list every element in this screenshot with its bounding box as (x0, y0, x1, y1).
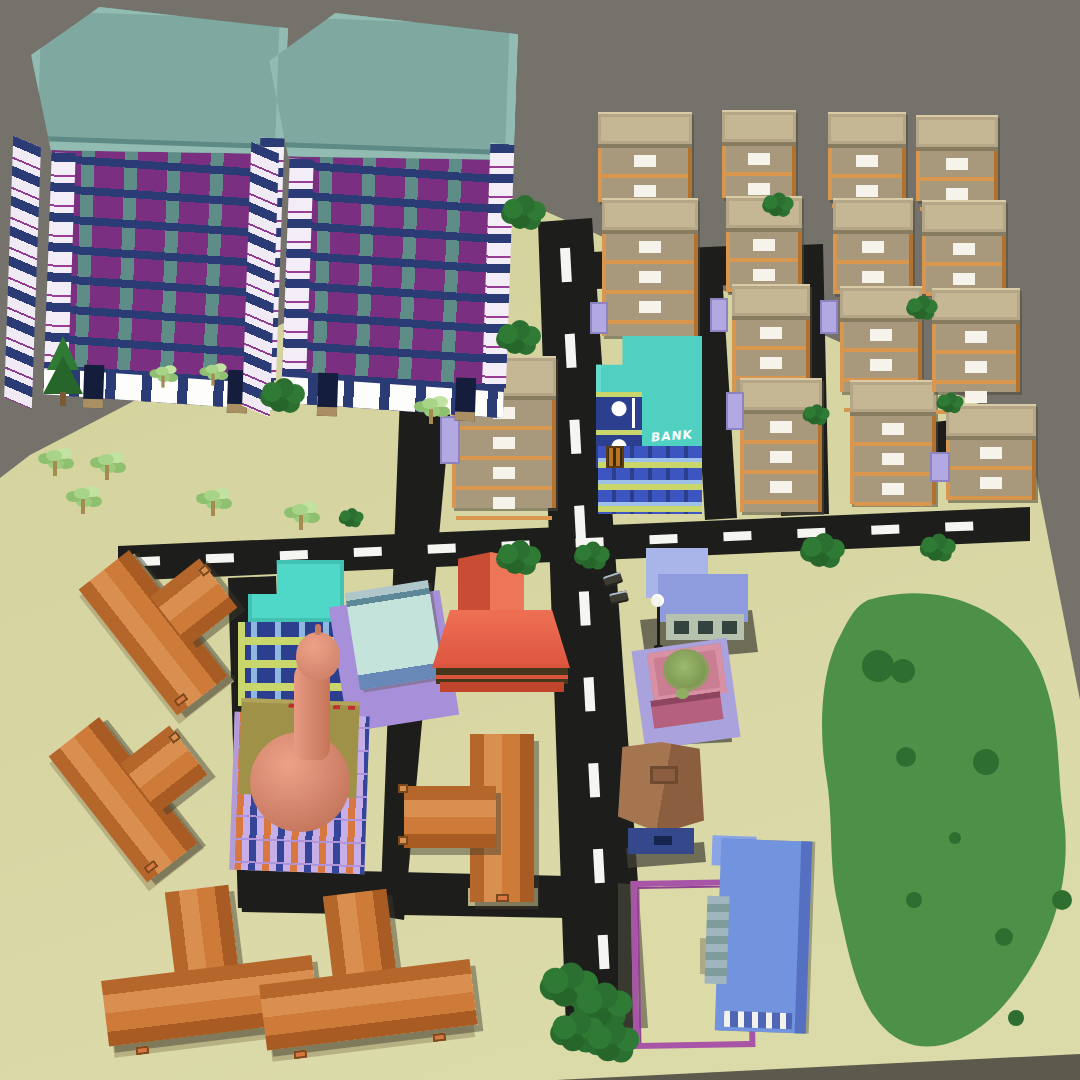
apartment-block (946, 404, 1036, 500)
dark-tree (938, 391, 964, 415)
street-lamp-pole (657, 606, 660, 648)
balcony-awning (820, 300, 838, 334)
pine-tree (36, 336, 90, 408)
chimney (398, 784, 408, 793)
mint-building (345, 580, 443, 690)
bank-sign: BANK (651, 427, 694, 444)
window (980, 477, 1002, 489)
orange-house (398, 730, 543, 908)
barn-window (654, 836, 672, 845)
barn-roof-hatch (650, 766, 678, 784)
dark-tree (764, 191, 795, 219)
window (862, 271, 884, 283)
window (639, 241, 661, 253)
apartment-roof (916, 115, 998, 151)
apartment-roof (732, 284, 810, 320)
apartment-block (598, 112, 692, 202)
hall-window-row (724, 1011, 793, 1029)
palm-tree (66, 486, 100, 518)
apartment-block (732, 284, 810, 392)
tower-entrance (455, 377, 476, 421)
palm-tree (90, 452, 124, 484)
window (674, 621, 689, 634)
tower-entrance (317, 373, 338, 417)
apartment-tower (257, 8, 519, 414)
window (870, 359, 892, 371)
minaret-bulb (296, 632, 340, 680)
tower-roof (266, 8, 519, 165)
palm-tree (38, 448, 72, 480)
apartment-block (850, 380, 936, 504)
apartment-roof (833, 198, 913, 234)
bank-flagpole (632, 398, 635, 428)
window (493, 437, 515, 449)
palm-tree (199, 363, 226, 389)
window (856, 155, 878, 167)
window (882, 453, 904, 465)
window (753, 239, 775, 251)
dark-tree (802, 531, 846, 571)
apartment-block (932, 288, 1020, 392)
dark-tree (908, 294, 939, 322)
window (770, 421, 792, 433)
window (770, 451, 792, 463)
window (722, 621, 737, 634)
house-window (432, 1033, 446, 1043)
window (634, 185, 656, 197)
apartment-roof (722, 110, 796, 146)
apartment-block (828, 112, 906, 200)
window (493, 497, 515, 509)
apartment-block (722, 110, 796, 198)
apartment-roof (922, 200, 1006, 236)
window (882, 483, 904, 495)
palm-tree (149, 365, 176, 391)
city-3d-viewport[interactable]: BANK (0, 0, 1080, 1080)
dark-tree (503, 193, 547, 233)
house-window (293, 1050, 307, 1060)
orange-house (245, 879, 482, 1060)
apartment-roof (932, 288, 1020, 324)
window (770, 481, 792, 493)
dark-tree (921, 532, 956, 564)
window (980, 447, 1002, 459)
balcony-awning (590, 302, 608, 334)
hall-stairs (704, 896, 729, 985)
window (493, 467, 515, 479)
tower-facade (281, 131, 512, 418)
window (965, 391, 987, 403)
apartment-roof (602, 198, 698, 234)
window (748, 153, 770, 165)
palm-tree (284, 502, 318, 534)
house-roof (404, 786, 496, 848)
window (946, 188, 968, 200)
dark-tree (340, 507, 364, 529)
red-building-band (436, 664, 568, 684)
palm-tree (196, 488, 230, 520)
balcony-awning (726, 392, 744, 430)
window (639, 271, 661, 283)
house-window (135, 1046, 149, 1056)
apartment-block (916, 115, 998, 201)
window (753, 269, 775, 281)
apartment-roof (598, 112, 692, 148)
window (953, 273, 975, 285)
dark-tree (498, 318, 542, 358)
hall-roof (715, 838, 813, 1033)
window (698, 621, 713, 634)
window (946, 158, 968, 170)
bank-door (606, 446, 624, 468)
fountain-basin (666, 652, 706, 688)
palm-tree (414, 396, 448, 428)
fountain-spout (676, 688, 689, 699)
street-lamp-bulb (651, 594, 664, 607)
window (639, 301, 661, 313)
apartment-roof (850, 380, 936, 416)
apartment-block (740, 378, 822, 512)
office-front-wall (666, 614, 744, 640)
minaret-tip (315, 624, 321, 635)
apartment-block (833, 198, 913, 294)
tower-roof (28, 2, 289, 159)
house-window (496, 894, 509, 902)
window (856, 185, 878, 197)
window (862, 241, 884, 253)
window (965, 331, 987, 343)
dark-tree (804, 403, 830, 427)
chimney (398, 836, 408, 845)
apartment-roof (828, 112, 906, 148)
balcony-awning (710, 298, 728, 332)
window (953, 243, 975, 255)
balcony-awning (930, 452, 950, 482)
window (760, 327, 782, 339)
window (760, 357, 782, 369)
dark-tree (262, 376, 306, 416)
red-building-hip-roof (432, 610, 570, 668)
window (634, 155, 656, 167)
window (870, 329, 892, 341)
red-building-base (440, 682, 564, 692)
window (965, 361, 987, 373)
apartment-block (602, 198, 698, 336)
dark-tree (498, 538, 542, 578)
window (882, 423, 904, 435)
dark-tree (575, 540, 610, 572)
dark-tree (588, 1018, 641, 1066)
apartment-block (922, 200, 1006, 294)
